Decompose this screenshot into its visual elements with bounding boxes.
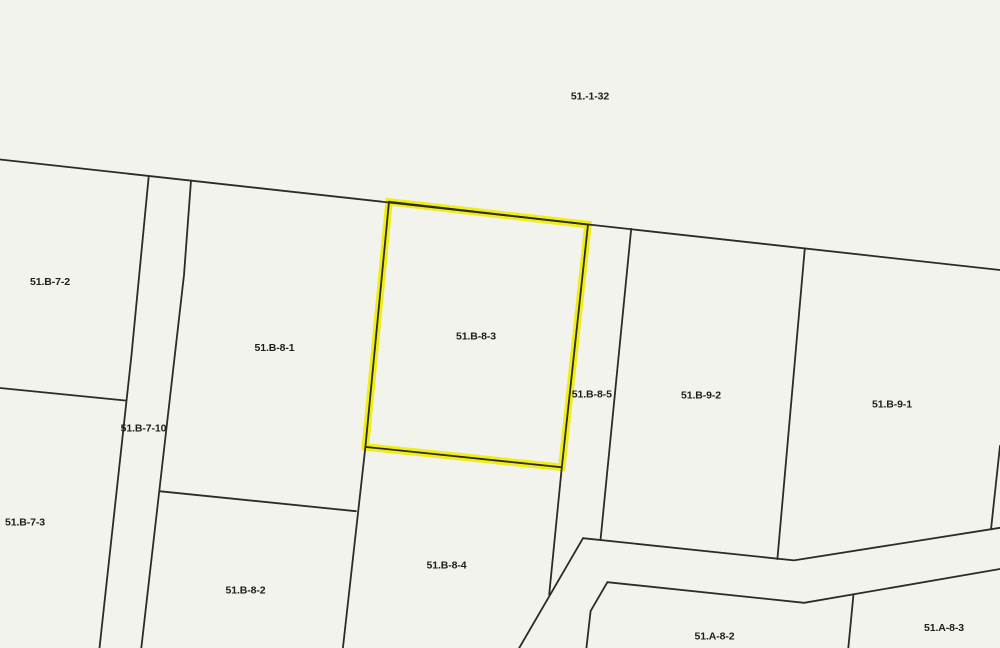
svg-text:51.B-8-3: 51.B-8-3 (456, 330, 496, 342)
svg-text:51.B-9-2: 51.B-9-2 (681, 389, 721, 401)
svg-text:51.A-8-2: 51.A-8-2 (694, 631, 734, 643)
svg-text:51.B-8-1: 51.B-8-1 (254, 342, 294, 354)
svg-text:51.B-7-10: 51.B-7-10 (121, 423, 167, 435)
svg-text:51.B-9-1: 51.B-9-1 (872, 399, 912, 411)
svg-text:51.B-7-2: 51.B-7-2 (30, 276, 70, 288)
svg-text:51.B-8-2: 51.B-8-2 (225, 584, 265, 596)
svg-text:51.-1-32: 51.-1-32 (571, 91, 610, 103)
svg-text:51.B-8-5: 51.B-8-5 (572, 389, 612, 401)
svg-text:51.B-8-4: 51.B-8-4 (426, 559, 466, 571)
svg-text:51.A-8-3: 51.A-8-3 (924, 622, 964, 634)
svg-text:51.B-7-3: 51.B-7-3 (5, 517, 45, 529)
